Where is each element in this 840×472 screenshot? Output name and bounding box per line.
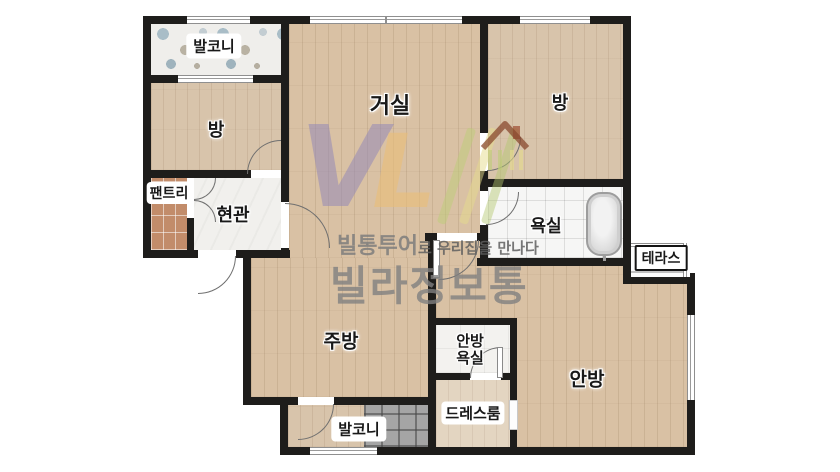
window-balcony-bottom <box>310 447 377 455</box>
balcony-top-label: 발코니 <box>186 34 241 59</box>
window-room-right-top <box>520 16 590 24</box>
wall-master-bath-top <box>428 318 517 325</box>
door-gap-dress <box>509 400 518 430</box>
wall-right-upper <box>623 16 631 284</box>
window-balcony-divider <box>178 75 253 83</box>
window-balcony-top <box>187 16 250 24</box>
terrace-floor-line <box>631 271 687 273</box>
wall-pantry-right <box>187 218 194 250</box>
wall-left <box>143 16 151 258</box>
bathtub <box>586 192 622 256</box>
pantry-label: 팬트리 <box>147 182 192 204</box>
window-living-mullion <box>385 16 387 24</box>
balcony-bottom-label: 발코니 <box>331 417 386 442</box>
dress-room-label: 드레스룸 <box>441 402 504 425</box>
wall-bath-bottom <box>477 258 631 266</box>
window-master-right <box>687 315 695 400</box>
terrace-label: 테라스 <box>635 245 688 271</box>
door-leaf-hall <box>433 240 440 278</box>
door-leaf-master-bath <box>497 347 503 378</box>
master-bedroom-label: 안방 <box>570 365 605 392</box>
room-left-label: 방 <box>208 116 225 142</box>
room-right-label: 방 <box>552 89 569 115</box>
wall-bath-top <box>488 179 631 187</box>
wall-terrace-bottom <box>623 277 695 284</box>
entry-label: 현관 <box>216 201 249 227</box>
master-bath-label: 안방 욕실 <box>456 333 484 368</box>
living-room-label: 거실 <box>370 88 410 120</box>
kitchen-label: 주방 <box>324 327 359 354</box>
door-arc-entry-bottom <box>198 256 236 294</box>
bathroom-label: 욕실 <box>530 212 561 237</box>
wall-kitchen-bottom <box>243 397 436 405</box>
floor-plan: V L 빌통투어로 우리집을 만나다 빌라정보통 발코니 방 거실 방 팬트리 … <box>0 0 840 472</box>
wall-kitchen-left <box>243 250 251 405</box>
